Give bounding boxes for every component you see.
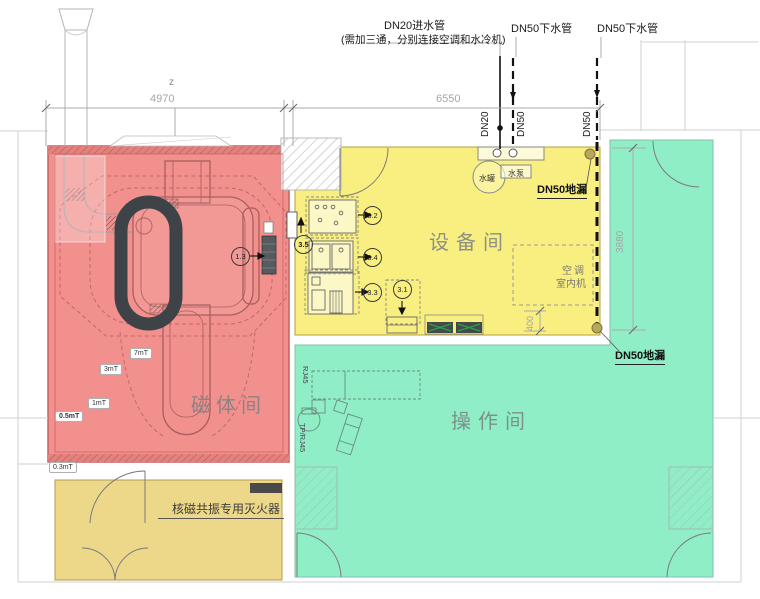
floor-drain-label-top: DN50地漏 bbox=[537, 181, 587, 199]
shield-recess bbox=[55, 156, 105, 242]
plan-drawing bbox=[0, 0, 760, 599]
water-tank-label: 水罐 bbox=[479, 173, 495, 184]
field-line-3mt: 3mT bbox=[100, 364, 122, 375]
field-line-05mt: 0.5mT bbox=[55, 411, 83, 422]
quench-vent-pipe bbox=[59, 9, 93, 146]
field-line-1mt: 1mT bbox=[88, 398, 110, 409]
axis-z-label: z bbox=[169, 77, 174, 88]
callout-3-2: 3.2 bbox=[363, 206, 382, 225]
drain-pipe-label-2: DN50下水管 bbox=[597, 23, 658, 35]
pipe-tag-dn50-b: DN50 bbox=[582, 111, 593, 137]
rj45-port-label: RJ45 bbox=[301, 366, 310, 384]
extinguisher-room-label: 核磁共振专用灭火器 bbox=[158, 503, 284, 519]
callout-3-4: 3.4 bbox=[363, 248, 382, 267]
equipment-room-label: 设备间 bbox=[429, 226, 510, 255]
callout-1-3: 1.3 bbox=[231, 247, 250, 266]
floor-drain-label-bottom: DN50地漏 bbox=[615, 347, 665, 365]
field-line-03mt: 0.3mT bbox=[49, 462, 77, 473]
inlet-pipe-note: (需加三通，分别连接空调和水冷机) bbox=[341, 35, 506, 47]
extinguisher-room-area bbox=[55, 480, 282, 580]
pipe-tag-dn50-a: DN50 bbox=[516, 111, 527, 137]
dim-3880: 3880 bbox=[615, 231, 626, 253]
callout-3-3: 3.3 bbox=[363, 283, 382, 302]
extinguisher-cabinet bbox=[250, 483, 282, 493]
operation-room-label: 操作间 bbox=[451, 405, 532, 434]
floor-drain-top bbox=[585, 149, 595, 159]
callout-3-1: 3.1 bbox=[393, 280, 412, 299]
dim-4970: 4970 bbox=[150, 93, 174, 105]
dim-6550: 6550 bbox=[436, 93, 460, 105]
floor-plan: DN20进水管 (需加三通，分别连接空调和水冷机) DN50下水管 DN50下水… bbox=[0, 0, 760, 599]
dim-400: 400 bbox=[525, 316, 535, 331]
callout-3-5: 3.5 bbox=[294, 235, 313, 254]
drain-pipe-label-1: DN50下水管 bbox=[511, 23, 572, 35]
field-line-7mt: 7mT bbox=[130, 348, 152, 359]
pipe-tag-dn20: DN20 bbox=[480, 111, 491, 137]
water-pump-label: 水泵 bbox=[508, 168, 524, 179]
tp-rj45-port-label: TP/RJ45 bbox=[298, 423, 307, 452]
magnet-room-label: 磁体间 bbox=[191, 389, 266, 418]
inlet-pipe-label: DN20进水管 bbox=[384, 20, 445, 32]
ac-indoor-label-line2: 室内机 bbox=[556, 275, 586, 290]
